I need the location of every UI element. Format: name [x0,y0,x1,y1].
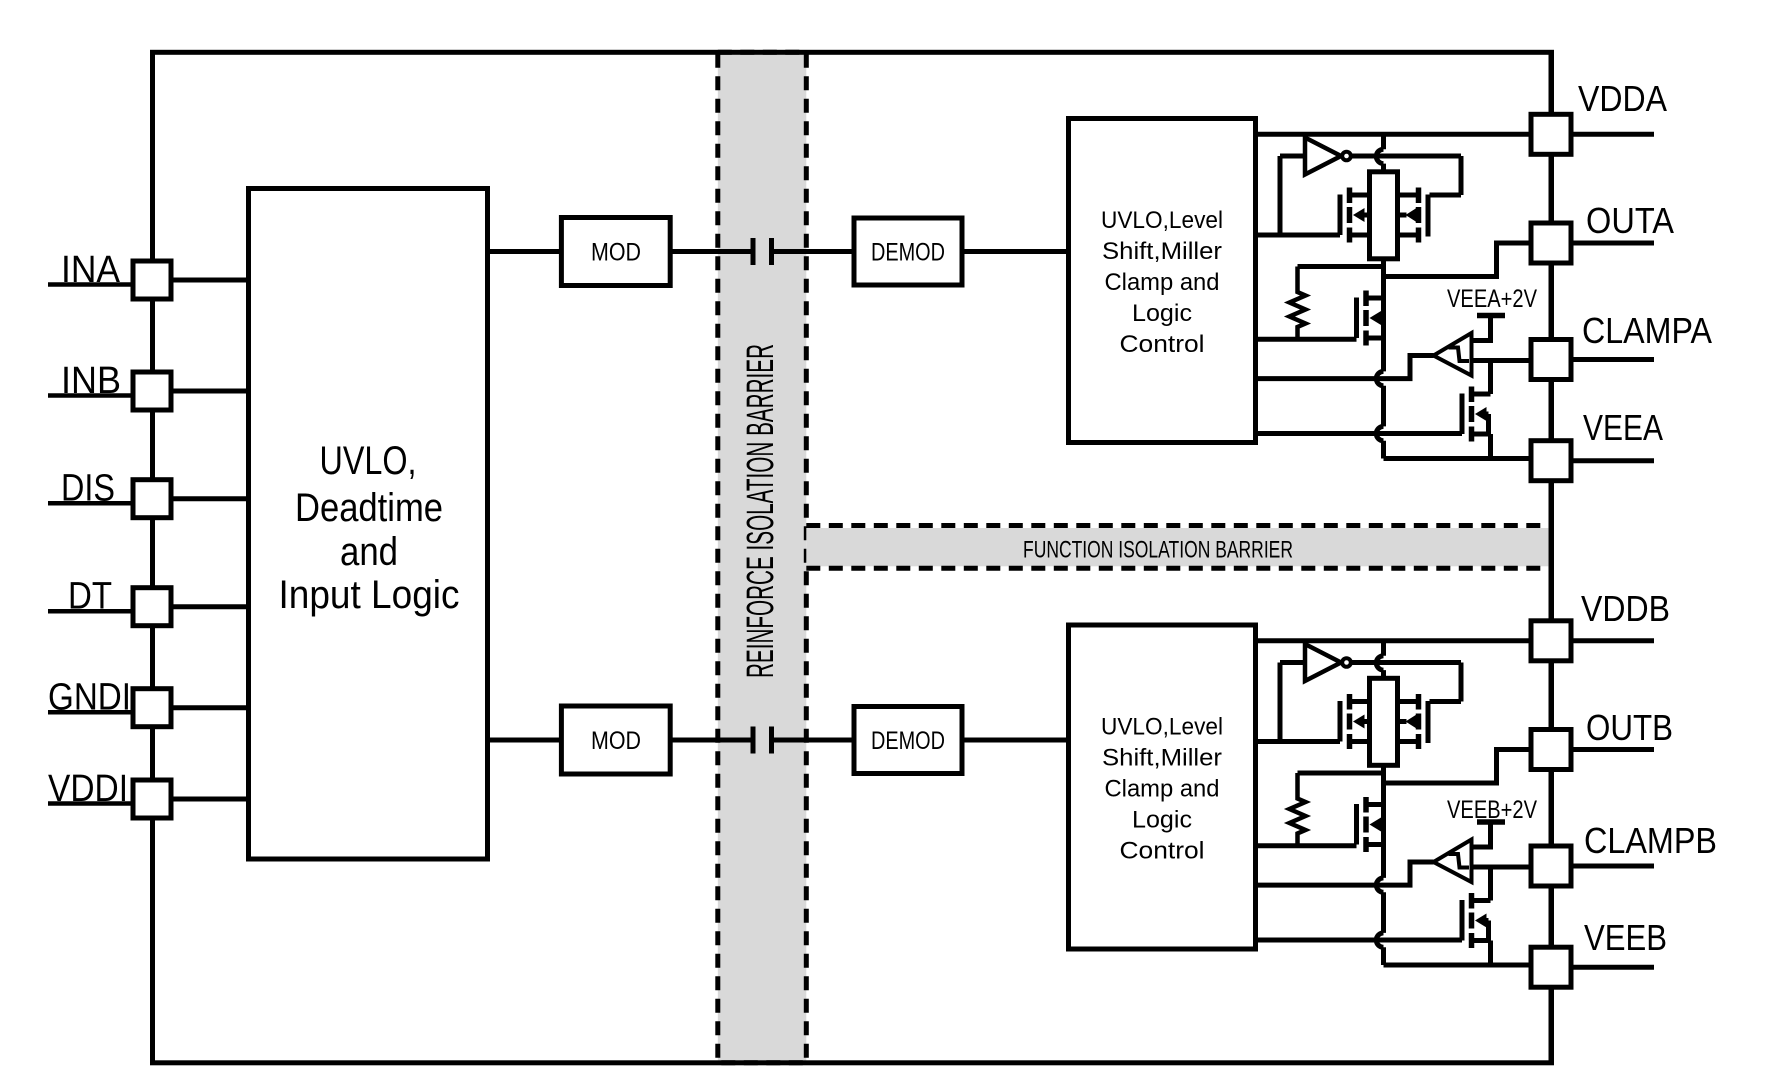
svg-text:CLAMPB: CLAMPB [1584,820,1717,861]
svg-text:VEEA+2V: VEEA+2V [1447,285,1537,313]
svg-text:VDDA: VDDA [1578,78,1667,119]
svg-text:UVLO,Level: UVLO,Level [1101,714,1223,741]
svg-text:Shift,Miller: Shift,Miller [1102,238,1222,265]
svg-text:Control: Control [1120,331,1205,358]
svg-text:DEMOD: DEMOD [871,727,945,755]
svg-text:VEEA: VEEA [1583,407,1663,448]
svg-text:FUNCTION ISOLATION BARRIER: FUNCTION ISOLATION BARRIER [1023,537,1293,564]
svg-text:Clamp and: Clamp and [1105,269,1220,296]
svg-text:VEEB: VEEB [1584,917,1667,958]
svg-text:Control: Control [1120,838,1205,865]
svg-text:Input Logic: Input Logic [279,573,460,617]
svg-text:and: and [340,530,398,574]
svg-text:REINFORCE ISOLATION BARRIER: REINFORCE ISOLATION BARRIER [740,344,782,678]
svg-text:Clamp and: Clamp and [1105,776,1220,803]
svg-text:UVLO,Level: UVLO,Level [1101,207,1223,234]
svg-text:MOD: MOD [591,239,641,267]
svg-text:UVLO,: UVLO, [320,439,417,483]
svg-text:Shift,Miller: Shift,Miller [1102,745,1222,772]
svg-text:MOD: MOD [591,727,641,755]
svg-text:Logic: Logic [1132,807,1192,834]
svg-text:INA: INA [61,249,121,291]
svg-text:Logic: Logic [1132,300,1192,327]
svg-text:VEEB+2V: VEEB+2V [1447,796,1537,824]
svg-text:OUTA: OUTA [1586,200,1674,241]
svg-text:INB: INB [61,360,121,402]
svg-text:VDDB: VDDB [1581,588,1670,629]
svg-text:GNDI: GNDI [48,677,131,719]
svg-text:Deadtime: Deadtime [295,486,443,530]
svg-text:DIS: DIS [61,468,115,510]
svg-text:DEMOD: DEMOD [871,239,945,267]
svg-text:CLAMPA: CLAMPA [1582,310,1712,351]
svg-text:OUTB: OUTB [1586,707,1673,748]
svg-text:DT: DT [68,576,112,618]
svg-text:VDDI: VDDI [48,768,128,810]
